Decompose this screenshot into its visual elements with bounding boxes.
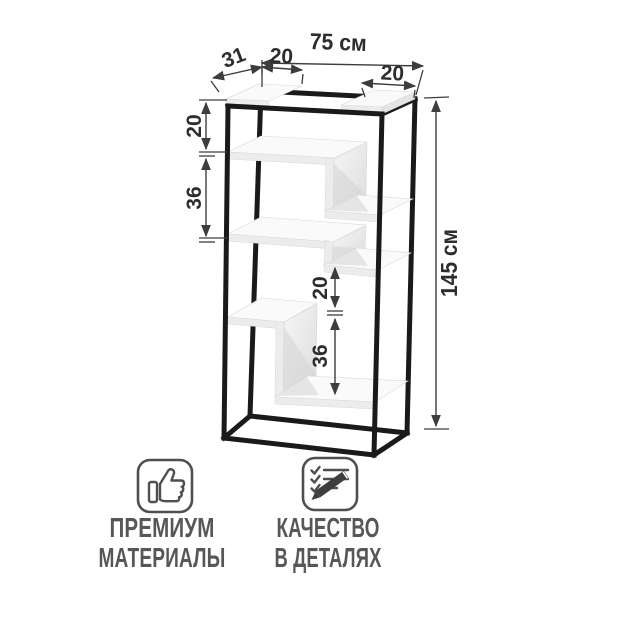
dim-depth: 31 bbox=[211, 43, 262, 92]
dim-label-top-left-shelf: 20 bbox=[269, 44, 294, 68]
thumbs-up-icon bbox=[138, 460, 192, 512]
dim-label-left-gap-top: 20 bbox=[183, 114, 206, 137]
dim-label-top-right-shelf: 20 bbox=[380, 61, 405, 85]
dim-label-height: 145 см bbox=[436, 229, 462, 297]
dim-label-top-width: 75 см bbox=[309, 28, 367, 56]
checklist-pencil-icon bbox=[303, 458, 357, 510]
feature-1-line-2: МАТЕРИАЛЫ bbox=[99, 542, 226, 573]
dim-height: 145 см bbox=[424, 97, 462, 429]
feature-quality-details: КАЧЕСТВО В ДЕТАЛЯХ bbox=[275, 458, 382, 573]
dim-label-inner-gap-bottom: 36 bbox=[309, 344, 332, 367]
dim-label-inner-gap-top: 20 bbox=[309, 276, 332, 299]
dim-left-gaps: 20 36 bbox=[183, 100, 227, 242]
feature-premium-materials: ПРЕМИУМ МАТЕРИАЛЫ bbox=[99, 460, 226, 573]
product-dimension-diagram: 75 см 31 20 20 20 36 20 36 bbox=[0, 0, 630, 630]
feature-1-line-1: ПРЕМИУМ bbox=[110, 512, 215, 543]
dim-label-depth: 31 bbox=[219, 43, 249, 73]
shelf-diagram-svg: 75 см 31 20 20 20 36 20 36 bbox=[0, 0, 630, 630]
feature-2-line-2: В ДЕТАЛЯХ bbox=[275, 542, 382, 573]
dim-label-left-gap-middle: 36 bbox=[183, 186, 206, 209]
feature-2-line-1: КАЧЕСТВО bbox=[277, 512, 380, 543]
